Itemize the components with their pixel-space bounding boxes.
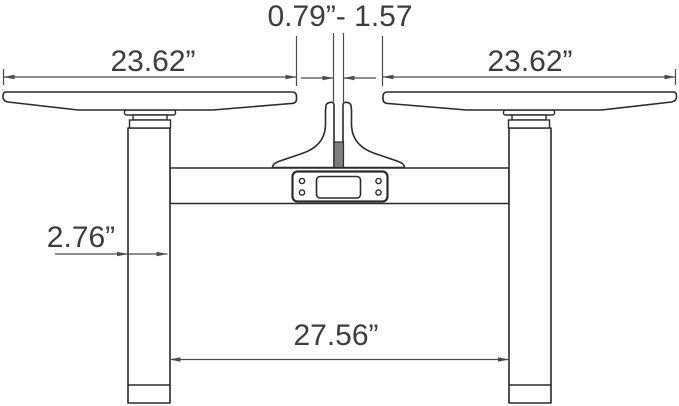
diagram-canvas: 23.62” 23.62” 0.79”- 1.57 2.76” [0,0,679,406]
keypad-screw-icon [299,178,304,183]
dim-label-right-tabletop-width: 23.62” [487,45,572,78]
center-bracket-right-half [343,102,405,167]
right-leg [504,110,555,403]
right-collar-upper [512,115,546,120]
dim-top-gap: 0.79”- 1.57 [267,0,412,102]
arrowhead-icon [498,357,509,362]
keypad-screw-icon [376,178,381,183]
dim-label-top-gap: 0.79”- 1.57 [267,0,412,33]
keypad-display [317,177,361,199]
dim-left-tabletop-width: 23.62” [4,36,297,86]
control-keypad [293,172,388,202]
arrowhead-icon [323,76,334,81]
left-collar-lower [130,120,171,128]
left-tabletop [3,92,297,110]
arrowhead-icon [117,252,128,257]
right-collar-lower [509,120,550,128]
keypad-screw-icon [299,190,304,195]
dim-label-leg-width: 2.76” [47,221,115,254]
arrowhead-icon [383,75,394,80]
center-bracket [273,102,405,167]
dim-label-inner-leg-span: 27.56” [293,319,378,352]
arrowhead-icon [665,75,676,80]
dim-inner-leg-span: 27.56” [170,319,510,362]
arrowhead-icon [170,357,181,362]
keypad-screw-icon [376,190,381,195]
arrowhead-icon [344,76,355,81]
dim-label-left-tabletop-width: 23.62” [110,45,195,78]
left-collar-upper [133,115,167,120]
arrowhead-icon [4,75,15,80]
arrowhead-icon [286,75,297,80]
right-tabletop [383,92,677,110]
left-leg [125,110,176,403]
center-bracket-left-half [273,102,335,167]
dim-right-tabletop-width: 23.62” [383,36,676,86]
center-bracket-gap-block [334,142,344,168]
desk-frame-technical-drawing: 23.62” 23.62” 0.79”- 1.57 2.76” [0,0,679,406]
